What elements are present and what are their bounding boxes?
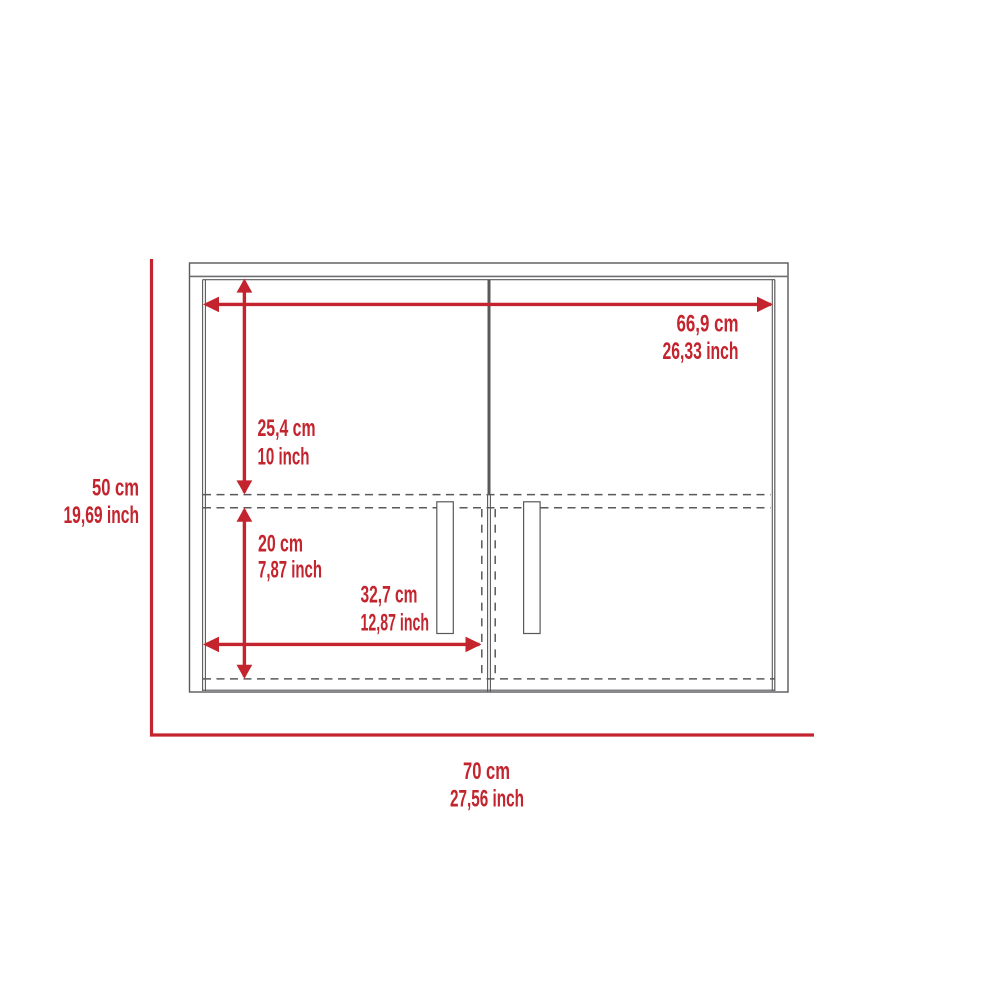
- svg-text:70 cm: 70 cm: [463, 758, 510, 785]
- svg-text:19,69 inch: 19,69 inch: [64, 502, 140, 529]
- svg-text:7,87 inch: 7,87 inch: [258, 557, 322, 584]
- svg-text:66,9 cm: 66,9 cm: [677, 310, 739, 337]
- svg-text:12,87 inch: 12,87 inch: [361, 610, 430, 637]
- svg-text:50 cm: 50 cm: [92, 475, 139, 502]
- svg-text:25,4 cm: 25,4 cm: [258, 415, 316, 442]
- svg-text:10 inch: 10 inch: [258, 443, 310, 470]
- svg-text:26,33 inch: 26,33 inch: [663, 338, 739, 365]
- svg-text:32,7 cm: 32,7 cm: [361, 582, 418, 609]
- svg-text:20 cm: 20 cm: [258, 531, 303, 558]
- svg-text:27,56 inch: 27,56 inch: [450, 786, 524, 813]
